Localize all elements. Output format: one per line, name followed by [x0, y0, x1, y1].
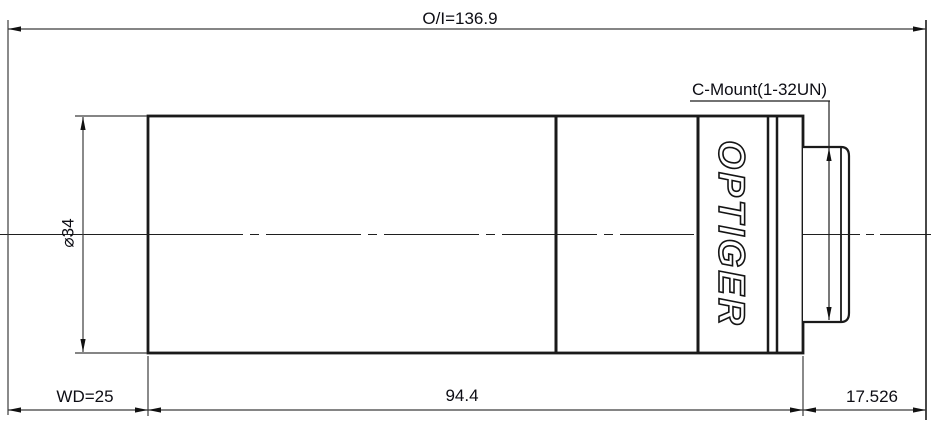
lens-technical-drawing: O/I=136.9 C-Mount(1-32UN) ⌀34 WD=25 94.4… [0, 0, 933, 426]
arrow-right-icon [135, 407, 148, 412]
arrow-right-icon [913, 407, 926, 412]
barrel-length-label: 94.4 [445, 387, 478, 404]
arrow-left-icon [8, 407, 21, 412]
flange-back-label: 17.526 [846, 388, 898, 405]
overall-length-label: O/I=136.9 [422, 10, 497, 27]
arrow-right-icon [913, 26, 926, 31]
diameter-label: ⌀34 [60, 218, 77, 247]
arrow-right-icon [790, 407, 803, 412]
arrow-up-icon [80, 117, 85, 130]
mount-thread-label: C-Mount(1-32UN) [692, 81, 827, 98]
arrow-down-icon [80, 339, 85, 352]
working-distance-label: WD=25 [56, 388, 113, 405]
arrow-left-icon [148, 407, 161, 412]
arrow-left-icon [8, 26, 21, 31]
drawing-canvas [0, 0, 933, 426]
arrow-left-icon [803, 407, 816, 412]
brand-label: OPTIGER [710, 140, 752, 328]
